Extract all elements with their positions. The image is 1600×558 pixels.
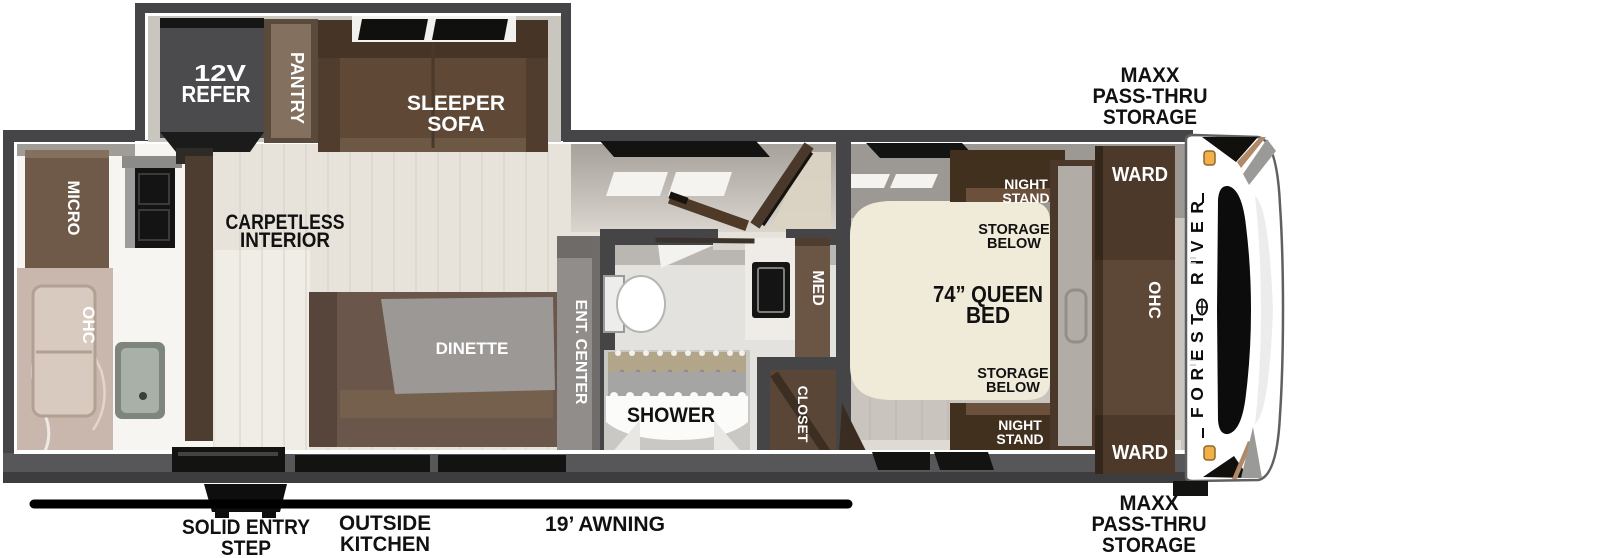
svg-text:STAND: STAND: [1002, 190, 1049, 206]
svg-text:SLEEPER: SLEEPER: [407, 92, 505, 115]
svg-text:BELOW: BELOW: [986, 380, 1040, 396]
svg-text:19’ AWNING: 19’ AWNING: [545, 513, 665, 536]
svg-text:PASS-THRU: PASS-THRU: [1093, 85, 1208, 108]
svg-text:BED: BED: [966, 302, 1010, 328]
svg-text:STORAGE: STORAGE: [1102, 534, 1196, 557]
svg-text:SOFA: SOFA: [427, 113, 484, 136]
svg-text:KITCHEN: KITCHEN: [340, 533, 430, 556]
svg-text:STORAGE: STORAGE: [1103, 106, 1197, 129]
svg-text:PASS-THRU: PASS-THRU: [1092, 513, 1207, 536]
svg-text:MED: MED: [809, 270, 826, 306]
svg-text:OHC: OHC: [1145, 281, 1164, 319]
svg-text:PANTRY: PANTRY: [287, 52, 307, 124]
svg-text:STEP: STEP: [221, 537, 271, 558]
svg-text:CLOSET: CLOSET: [795, 386, 811, 443]
svg-text:WARD: WARD: [1112, 164, 1168, 186]
svg-text:MAXX: MAXX: [1121, 64, 1180, 87]
svg-text:ENT. CENTER: ENT. CENTER: [572, 300, 589, 405]
svg-text:SHOWER: SHOWER: [627, 404, 715, 427]
svg-text:OHC: OHC: [79, 306, 98, 344]
svg-text:INTERIOR: INTERIOR: [240, 229, 330, 252]
svg-text:STAND: STAND: [996, 431, 1043, 447]
svg-text:BELOW: BELOW: [987, 236, 1041, 252]
svg-text:SOLID ENTRY: SOLID ENTRY: [182, 516, 310, 539]
svg-text:MICRO: MICRO: [64, 181, 82, 236]
svg-text:REFER: REFER: [182, 81, 251, 107]
svg-text:WARD: WARD: [1112, 442, 1168, 464]
svg-text:DINETTE: DINETTE: [436, 339, 509, 358]
svg-text:MAXX: MAXX: [1120, 492, 1179, 515]
svg-text:OUTSIDE: OUTSIDE: [339, 512, 431, 535]
